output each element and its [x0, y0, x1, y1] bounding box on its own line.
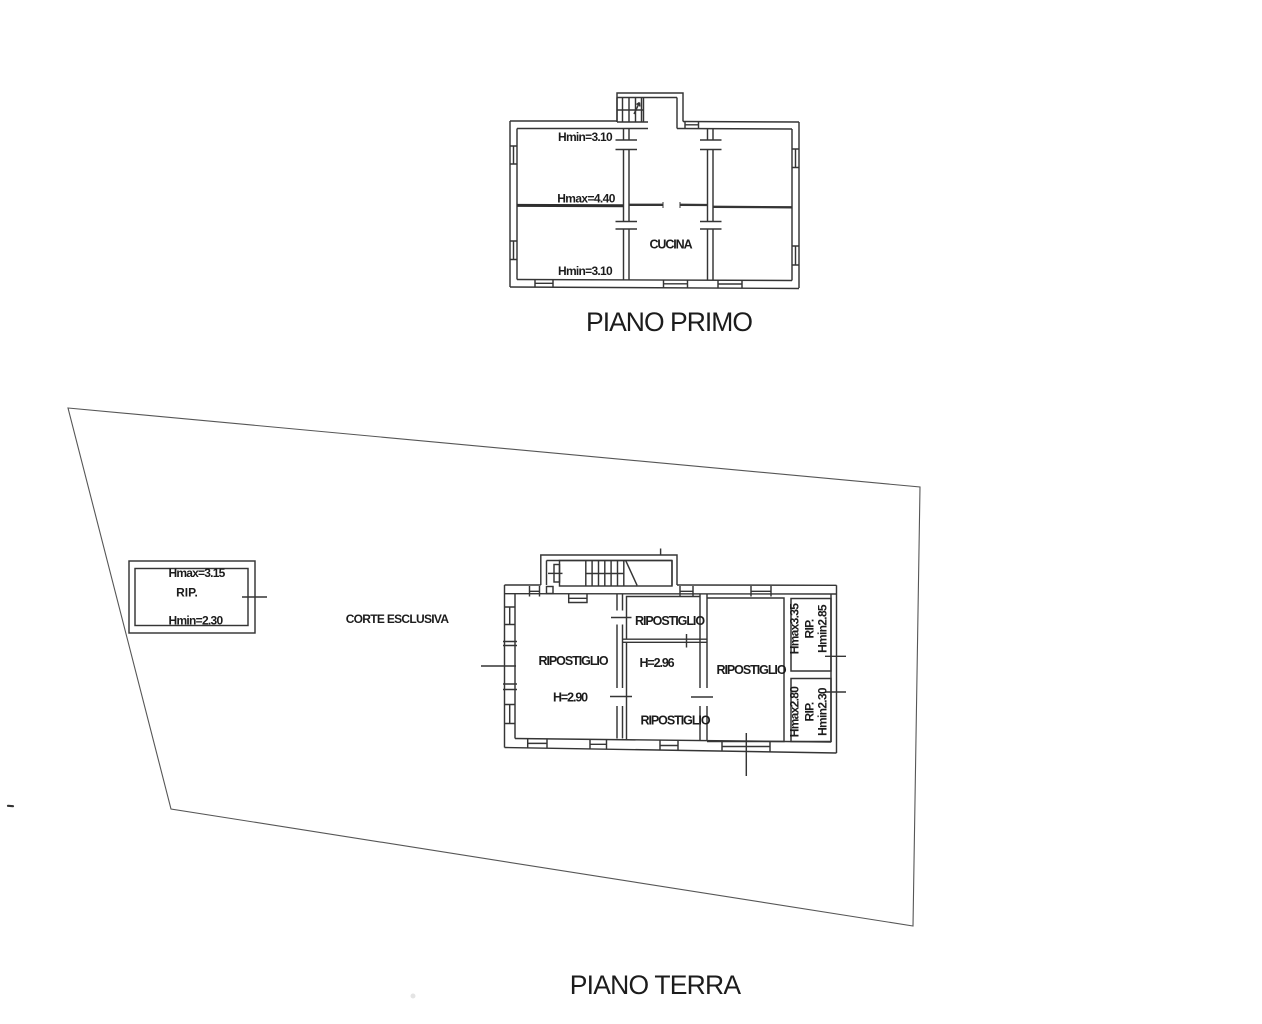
svg-text:PIANO PRIMO: PIANO PRIMO: [586, 307, 752, 337]
svg-text:Hmin2.30: Hmin2.30: [816, 687, 830, 736]
svg-text:CUCINA: CUCINA: [649, 238, 692, 252]
svg-text:RIPOSTIGLIO: RIPOSTIGLIO: [538, 654, 608, 668]
svg-text:PIANO TERRA: PIANO TERRA: [570, 970, 742, 1000]
svg-text:RIP.: RIP.: [176, 586, 198, 600]
svg-text:Hmax=4.40: Hmax=4.40: [557, 191, 615, 205]
svg-text:RIPOSTIGLIO: RIPOSTIGLIO: [640, 714, 710, 728]
svg-text:Hmax2.80: Hmax2.80: [788, 686, 802, 738]
svg-text:Hmax=3.15: Hmax=3.15: [168, 566, 225, 580]
svg-text:H=2.90: H=2.90: [553, 691, 588, 705]
svg-text:RIPOSTIGLIO: RIPOSTIGLIO: [716, 663, 786, 677]
svg-text:RIPOSTIGLIO: RIPOSTIGLIO: [635, 614, 705, 628]
svg-text:Hmin2.85: Hmin2.85: [816, 604, 830, 653]
svg-text:Hmin=3.10: Hmin=3.10: [558, 264, 613, 278]
svg-text:RIP.: RIP.: [802, 702, 816, 721]
svg-text:CORTE ESCLUSIVA: CORTE ESCLUSIVA: [346, 612, 450, 626]
svg-text:H=2.96: H=2.96: [639, 656, 674, 670]
svg-text:Hmax3.35: Hmax3.35: [788, 603, 802, 655]
svg-text:Hmin=3.10: Hmin=3.10: [558, 130, 613, 144]
svg-text:Hmin=2.30: Hmin=2.30: [169, 613, 224, 627]
svg-text:RIP.: RIP.: [802, 619, 816, 638]
